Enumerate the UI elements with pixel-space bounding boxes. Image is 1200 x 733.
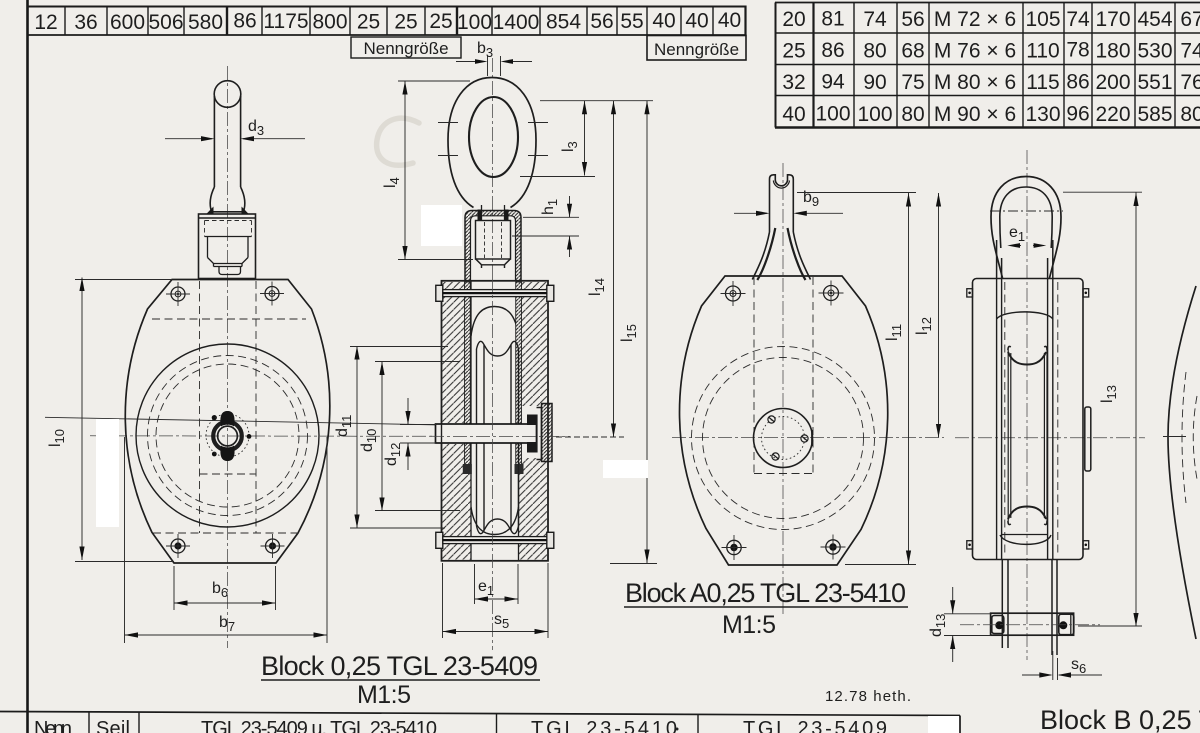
svg-text:Block A0,25 TGL 23-5410: Block A0,25 TGL 23-5410 <box>625 578 906 608</box>
svg-text:Nenngröße: Nenngröße <box>363 39 448 58</box>
svg-text:530: 530 <box>1137 40 1172 63</box>
svg-text:506: 506 <box>148 11 183 34</box>
svg-text:105: 105 <box>1025 8 1060 31</box>
svg-text:12.78 heth.: 12.78 heth. <box>825 688 911 705</box>
svg-text:12: 12 <box>34 11 57 34</box>
svg-text:75: 75 <box>901 71 924 94</box>
svg-text:1175: 1175 <box>263 10 308 33</box>
svg-text:Nenn: Nenn <box>34 718 72 733</box>
svg-text:74: 74 <box>863 8 887 31</box>
svg-text:86: 86 <box>1066 71 1089 94</box>
svg-text:90: 90 <box>863 71 886 94</box>
svg-text:40: 40 <box>685 10 708 33</box>
svg-text:20: 20 <box>782 8 805 31</box>
svg-text:100: 100 <box>457 11 492 34</box>
svg-text:180: 180 <box>1095 40 1130 63</box>
svg-text:170: 170 <box>1095 8 1130 31</box>
svg-text:M 72 × 6: M 72 × 6 <box>934 8 1016 31</box>
svg-text:854: 854 <box>546 11 581 34</box>
svg-text:55: 55 <box>620 10 643 33</box>
svg-text:78: 78 <box>1066 39 1089 62</box>
svg-text:25: 25 <box>429 10 452 33</box>
svg-text:25: 25 <box>394 11 417 34</box>
svg-text:600: 600 <box>110 11 145 34</box>
svg-text:580: 580 <box>188 11 223 34</box>
svg-text:56: 56 <box>901 8 924 31</box>
svg-text:115: 115 <box>1026 71 1059 94</box>
svg-text:100: 100 <box>857 103 892 126</box>
svg-text:Seil: Seil <box>96 718 130 733</box>
svg-text:56: 56 <box>590 10 613 33</box>
svg-text:81: 81 <box>821 8 844 31</box>
svg-text:86: 86 <box>821 39 844 62</box>
svg-text:130: 130 <box>1025 103 1060 126</box>
svg-text:1400: 1400 <box>493 11 540 34</box>
svg-text:454: 454 <box>1137 8 1172 31</box>
svg-text:M1:5: M1:5 <box>357 681 411 709</box>
svg-text:74: 74 <box>1066 8 1090 31</box>
svg-text:68: 68 <box>901 40 924 63</box>
svg-text:80: 80 <box>1180 103 1200 126</box>
svg-text:800: 800 <box>312 11 347 34</box>
svg-text:32: 32 <box>782 71 805 94</box>
svg-text:67: 67 <box>1180 8 1200 31</box>
svg-text:M 76 × 6: M 76 × 6 <box>934 40 1016 63</box>
svg-text:220: 220 <box>1095 103 1130 126</box>
svg-text:100: 100 <box>815 103 850 126</box>
svg-text:36: 36 <box>74 11 97 34</box>
svg-text:TGL 23-5409: TGL 23-5409 <box>743 718 887 733</box>
svg-text:40: 40 <box>718 9 741 32</box>
svg-text:Nenngröße: Nenngröße <box>654 40 739 59</box>
svg-text:86: 86 <box>233 10 256 33</box>
svg-text:TGL 23-5410: TGL 23-5410 <box>531 718 677 733</box>
svg-text:TGL 23-5409 u. TGL 23-5410: TGL 23-5409 u. TGL 23-5410 <box>201 718 437 733</box>
svg-text:200: 200 <box>1095 71 1130 94</box>
svg-text:Block 0,25 TGL 23-5409: Block 0,25 TGL 23-5409 <box>261 651 538 681</box>
svg-text:96: 96 <box>1066 103 1089 126</box>
svg-text:M 90 × 6: M 90 × 6 <box>934 103 1016 126</box>
svg-text:25: 25 <box>782 40 805 63</box>
svg-text:76: 76 <box>1180 71 1200 94</box>
svg-text:551: 551 <box>1137 71 1172 94</box>
svg-text:25: 25 <box>357 11 380 34</box>
svg-text:M 80 × 6: M 80 × 6 <box>934 71 1016 94</box>
svg-text:110: 110 <box>1026 40 1059 63</box>
svg-text:40: 40 <box>652 10 675 33</box>
svg-text:80: 80 <box>901 103 924 126</box>
svg-text:Block B 0,25 T: Block B 0,25 T <box>1040 705 1200 733</box>
svg-text:M1:5: M1:5 <box>722 611 776 639</box>
svg-text:74: 74 <box>1180 40 1200 63</box>
svg-text:94: 94 <box>821 71 845 94</box>
svg-text:585: 585 <box>1137 103 1172 126</box>
svg-text:40: 40 <box>782 103 805 126</box>
svg-text:80: 80 <box>863 40 886 63</box>
